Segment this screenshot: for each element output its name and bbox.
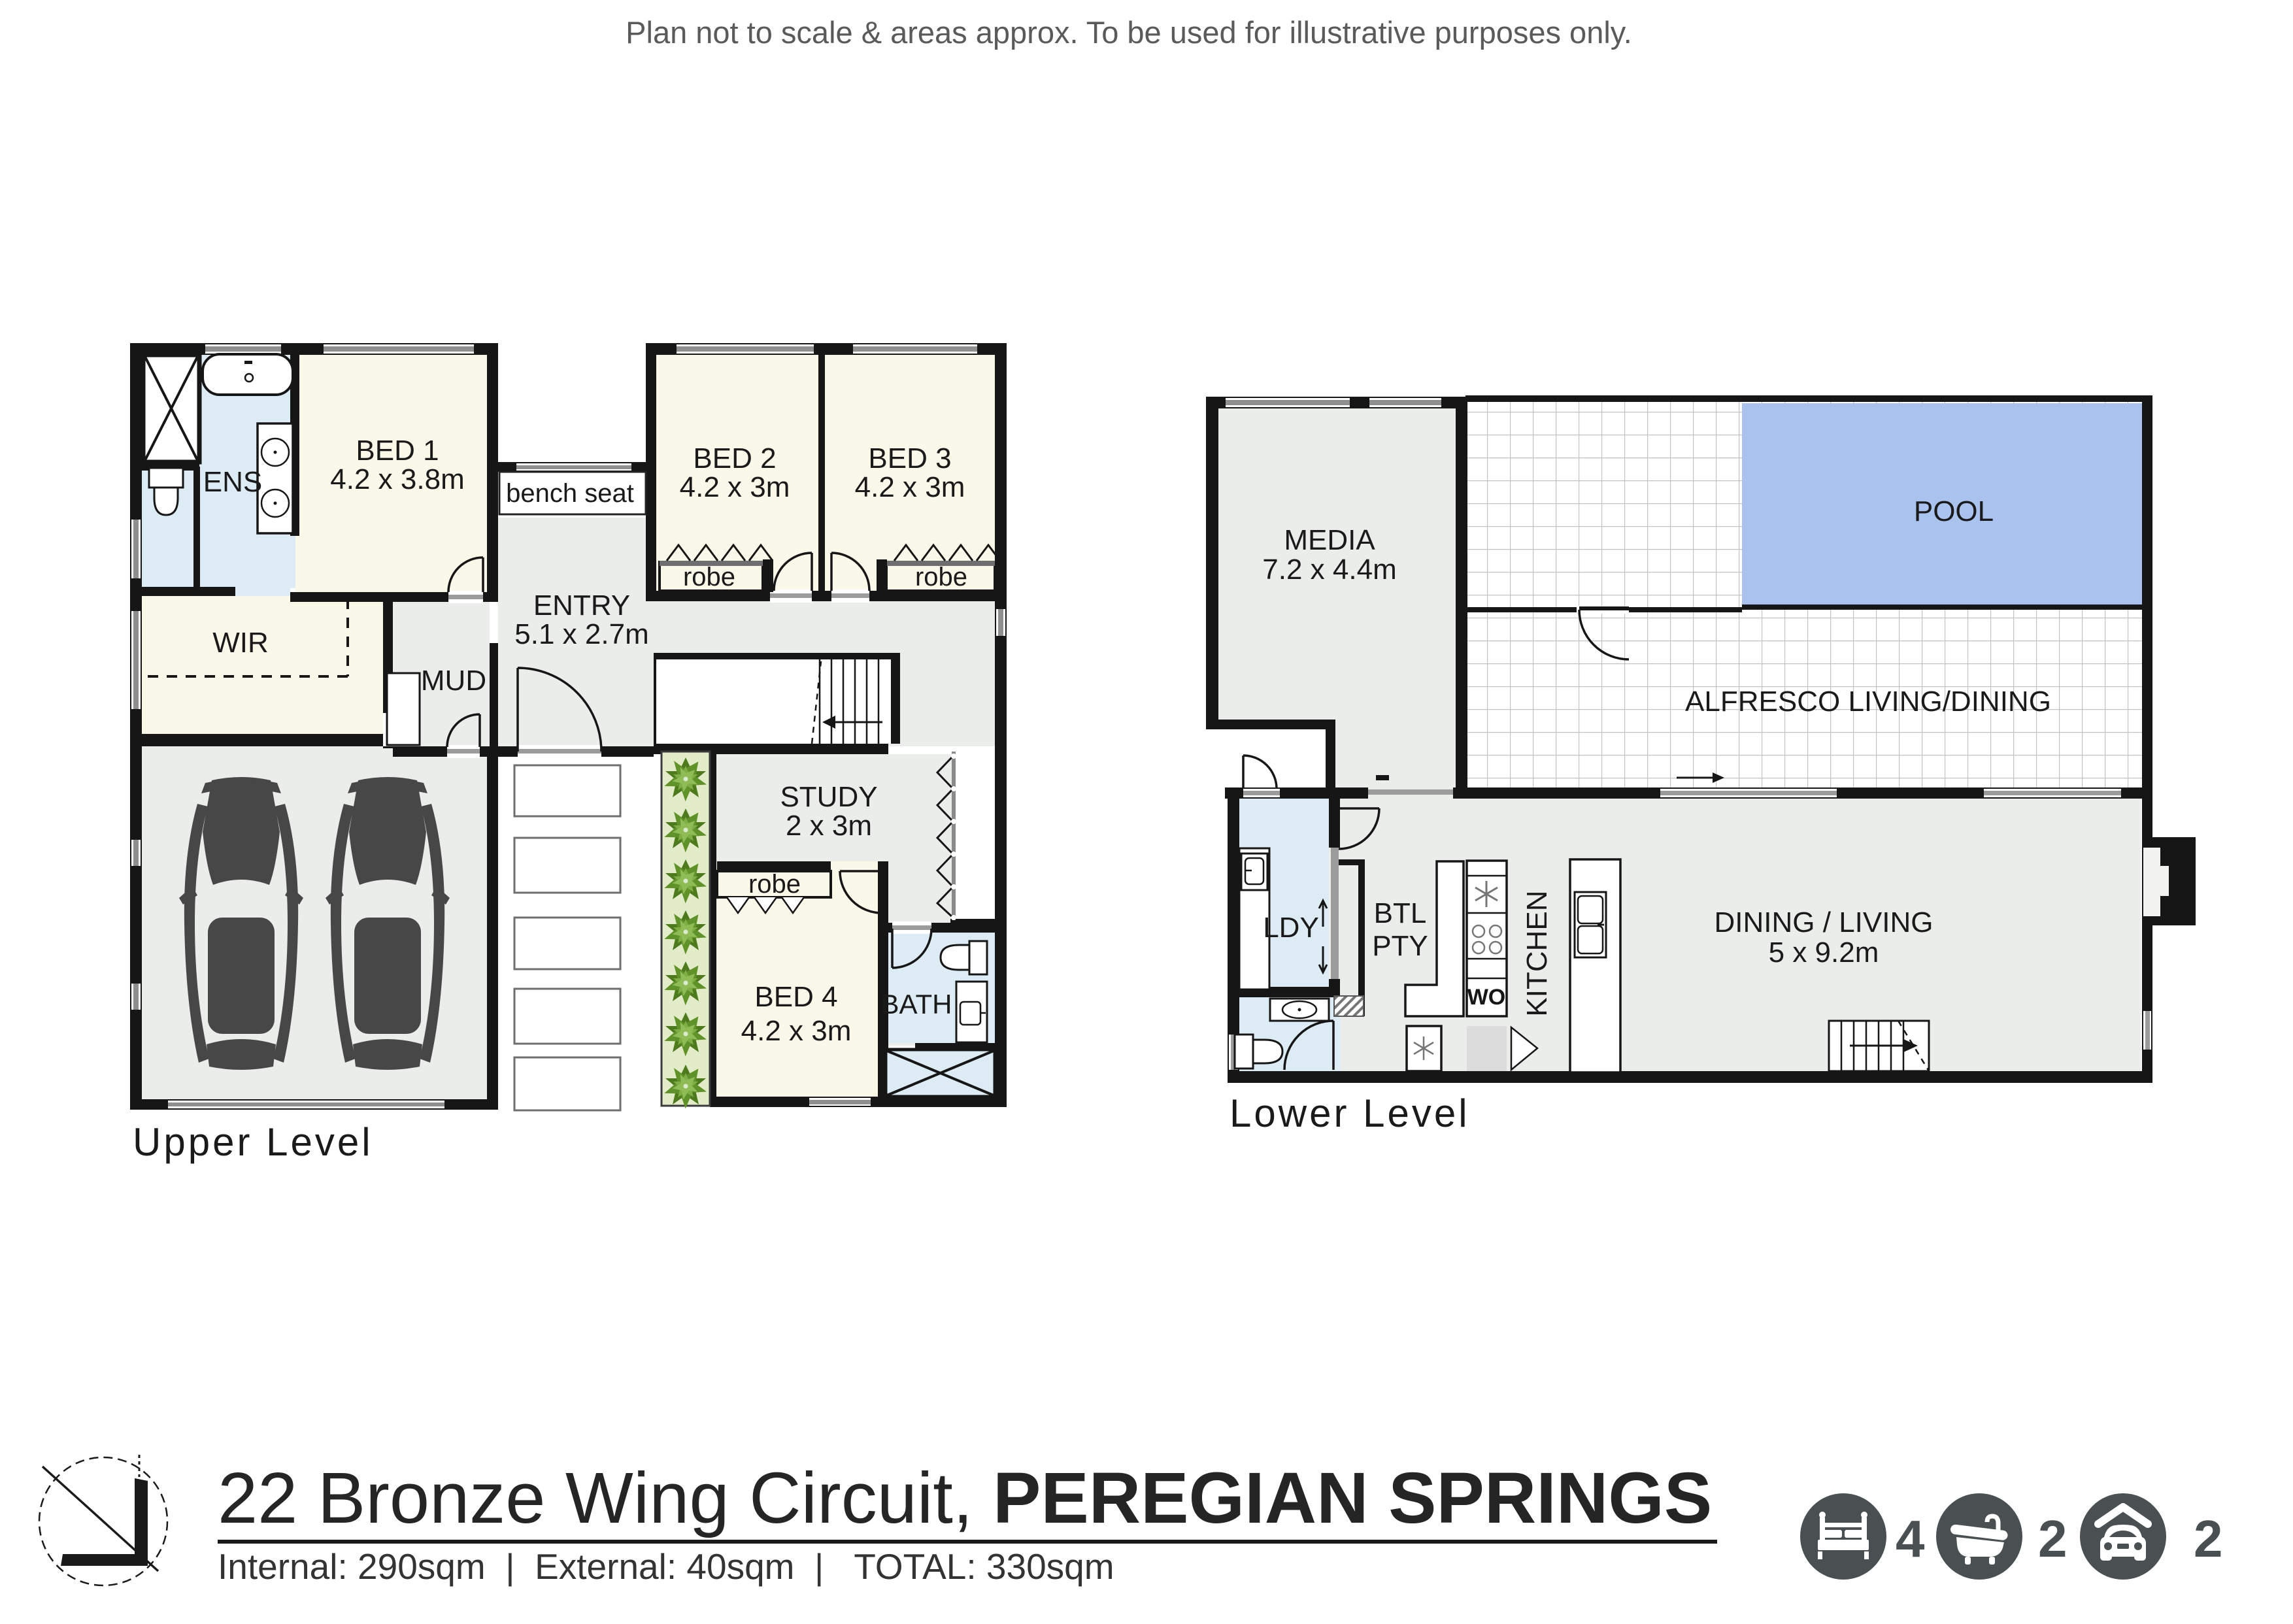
svg-text:LDY: LDY <box>1263 912 1319 944</box>
svg-text:STUDY: STUDY <box>780 781 877 813</box>
svg-text:BED 2: BED 2 <box>693 442 776 474</box>
svg-text:4.2 x 3m: 4.2 x 3m <box>855 471 965 503</box>
svg-text:PTY: PTY <box>1372 930 1428 962</box>
svg-text:ENTRY: ENTRY <box>533 589 630 621</box>
svg-text:DINING / LIVING: DINING / LIVING <box>1715 906 1933 938</box>
svg-text:BTL: BTL <box>1374 897 1427 929</box>
svg-text:Upper Level: Upper Level <box>133 1120 373 1164</box>
svg-text:BED 3: BED 3 <box>868 442 951 474</box>
svg-text:robe: robe <box>748 870 801 899</box>
svg-text:MUD: MUD <box>421 665 486 697</box>
svg-text:Internal: 290sqm | External:: Internal: 290sqm | External: 40sqm | TOT… <box>218 1546 1114 1587</box>
svg-text:BED 4: BED 4 <box>754 981 837 1013</box>
svg-text:KITCHEN: KITCHEN <box>1521 890 1553 1016</box>
svg-text:BED 1: BED 1 <box>356 435 439 467</box>
svg-text:4.2 x 3.8m: 4.2 x 3.8m <box>330 463 464 495</box>
svg-text:4.2 x 3m: 4.2 x 3m <box>680 471 790 503</box>
svg-text:Plan not to scale & areas appr: Plan not to scale & areas approx. To be … <box>626 15 1632 50</box>
svg-text:WO: WO <box>1467 985 1506 1010</box>
svg-text:4: 4 <box>1896 1510 1925 1568</box>
svg-text:5.1 x 2.7m: 5.1 x 2.7m <box>514 618 648 650</box>
svg-text:5 x 9.2m: 5 x 9.2m <box>1769 936 1879 969</box>
svg-text:2: 2 <box>2194 1510 2223 1568</box>
svg-text:POOL: POOL <box>1914 495 1994 527</box>
svg-text:2 x 3m: 2 x 3m <box>786 810 872 842</box>
svg-text:robe: robe <box>915 563 967 591</box>
svg-text:WIR: WIR <box>212 627 269 659</box>
svg-text:MEDIA: MEDIA <box>1284 524 1375 556</box>
svg-text:7.2 x 4.4m: 7.2 x 4.4m <box>1262 554 1396 586</box>
svg-text:robe: robe <box>683 563 735 591</box>
svg-text:2: 2 <box>2038 1510 2067 1568</box>
svg-text:4.2 x 3m: 4.2 x 3m <box>741 1015 852 1047</box>
svg-text:bench seat: bench seat <box>506 479 634 508</box>
svg-text:ALFRESCO LIVING/DINING: ALFRESCO LIVING/DINING <box>1685 686 2051 718</box>
svg-text:22 Bronze Wing Circuit, PEREGI: 22 Bronze Wing Circuit, PEREGIAN SPRINGS <box>218 1458 1712 1538</box>
svg-text:BATH: BATH <box>881 989 952 1019</box>
svg-text:ENS: ENS <box>203 466 262 498</box>
svg-text:Lower Level: Lower Level <box>1230 1091 1470 1135</box>
